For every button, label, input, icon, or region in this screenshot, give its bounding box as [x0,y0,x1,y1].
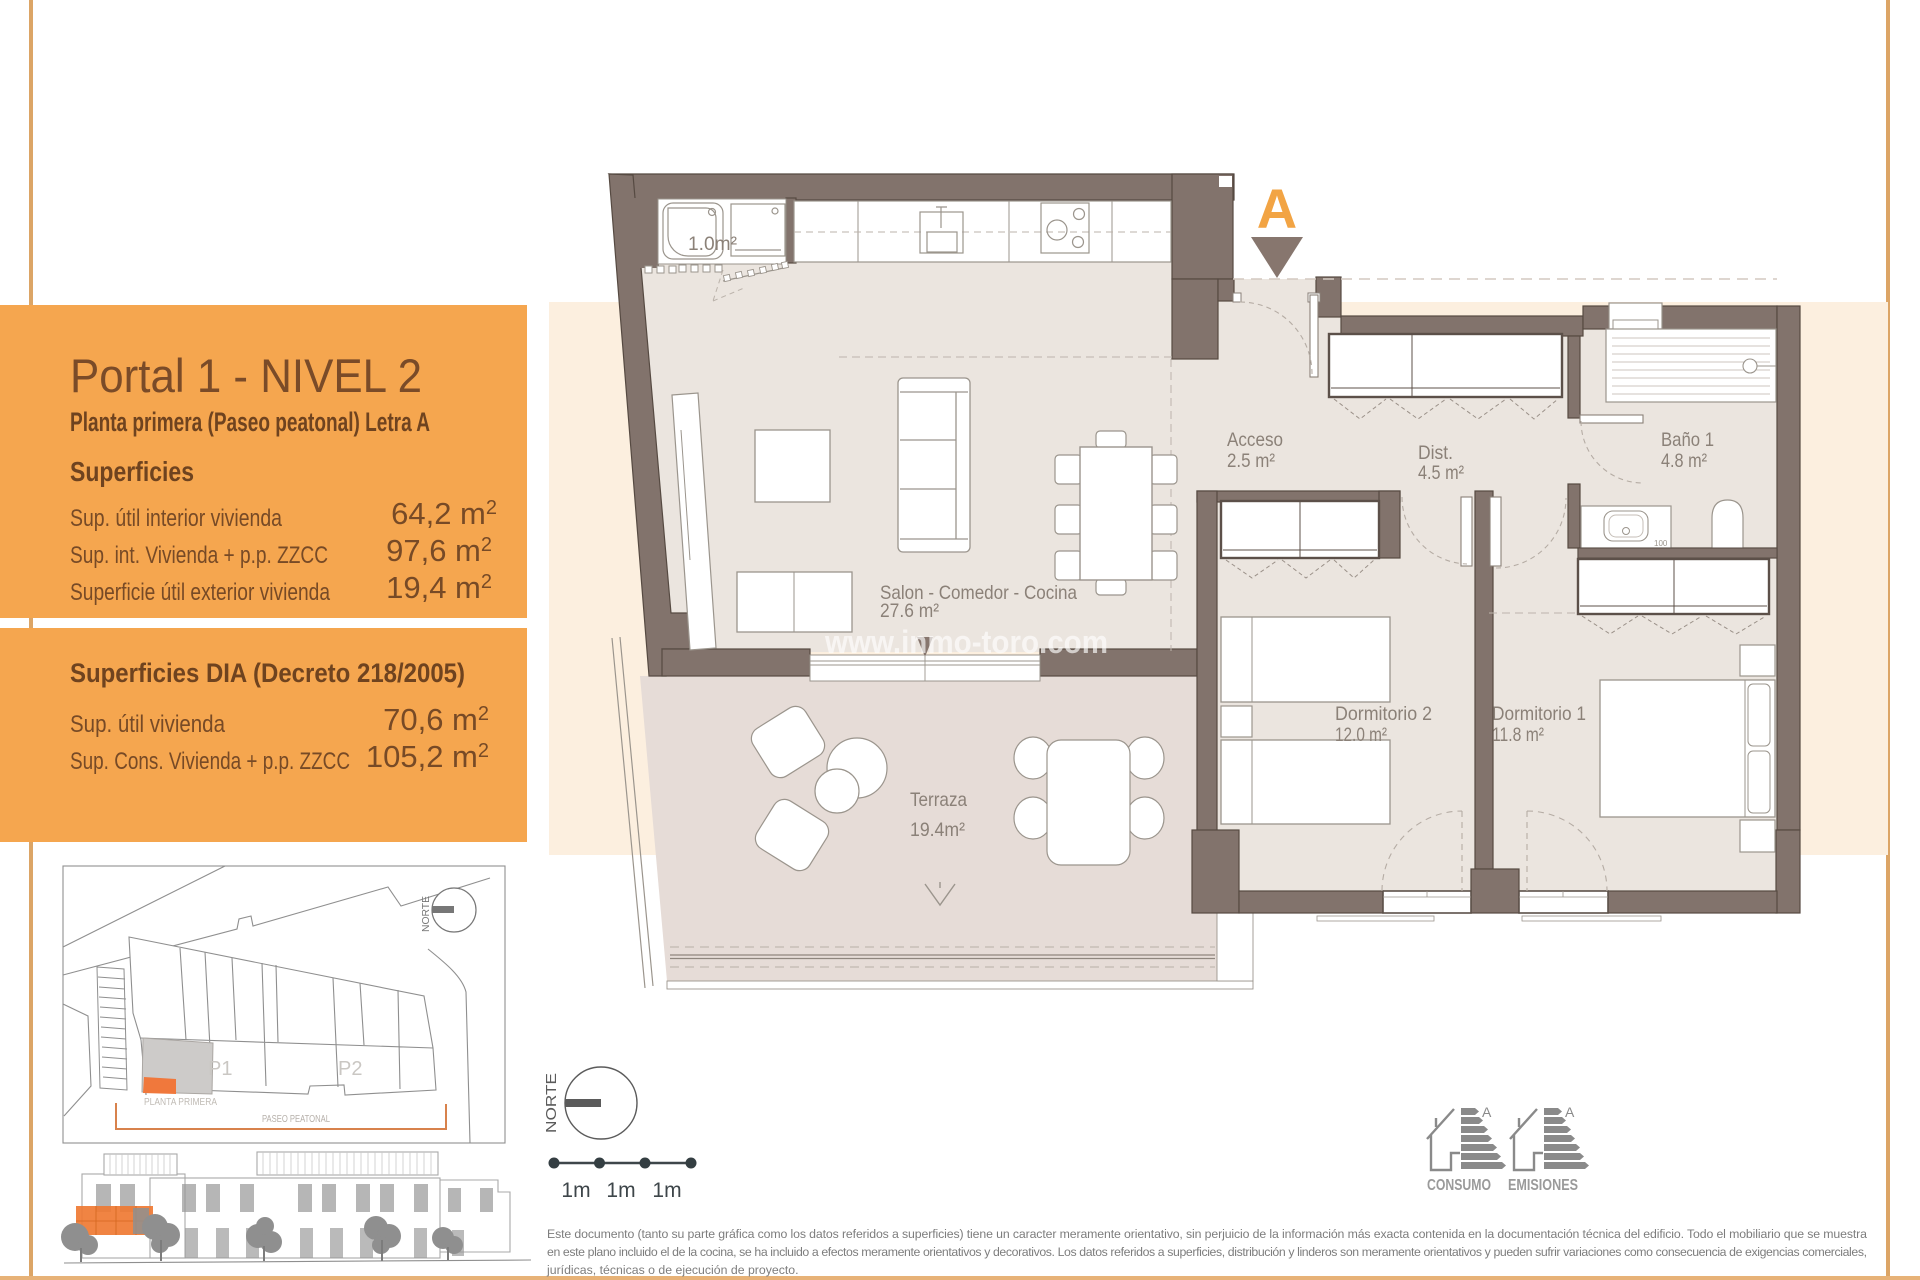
svg-text:64,2 m2: 64,2 m2 [391,496,497,531]
svg-text:19.4m²: 19.4m² [910,819,965,841]
svg-text:105,2 m2: 105,2 m2 [366,739,489,774]
svg-text:Terraza: Terraza [910,789,967,811]
svg-text:jurídicas, técnicas o de e: jurídicas, técnicas o de ejecución de pr… [546,1263,799,1277]
svg-text:Superficies DIA (Decreto 218/2: Superficies DIA (Decreto 218/2005) [70,658,465,688]
svg-text:en este plano incluido el de l: en este plano incluido el de la cocina, … [547,1245,1867,1259]
svg-text:www.inmo-toro.com: www.inmo-toro.com [824,624,1108,660]
svg-text:Sup. Cons. Vivienda + p.p. ZZC: Sup. Cons. Vivienda + p.p. ZZCC [70,748,350,775]
svg-text:70,6 m2: 70,6 m2 [383,702,489,737]
svg-text:CONSUMO: CONSUMO [1427,1177,1491,1194]
svg-text:Sup. int. Vivienda + p.p. ZZCC: Sup. int. Vivienda + p.p. ZZCC [70,542,328,569]
svg-text:EMISIONES: EMISIONES [1508,1177,1578,1194]
svg-text:Superficies: Superficies [70,456,194,487]
svg-text:A: A [1257,177,1297,240]
svg-text:Dormitorio 1: Dormitorio 1 [1492,703,1586,725]
svg-text:Superficie útil exterior vivie: Superficie útil exterior vivienda [70,579,331,606]
svg-text:4.5 m²: 4.5 m² [1418,462,1464,484]
svg-text:PASEO PEATONAL: PASEO PEATONAL [262,1113,330,1125]
svg-text:1m: 1m [561,1179,590,1202]
svg-text:Dormitorio 2: Dormitorio 2 [1335,703,1432,725]
svg-text:1m: 1m [652,1179,681,1202]
svg-text:NORTE: NORTE [421,896,432,932]
svg-text:100: 100 [1654,539,1668,548]
svg-text:P1: P1 [208,1058,232,1080]
svg-text:Dist.: Dist. [1418,442,1453,464]
svg-text:Sup. útil vivienda: Sup. útil vivienda [70,711,226,738]
svg-text:19,4 m2: 19,4 m2 [386,570,492,605]
svg-text:Portal 1 - NIVEL 2: Portal 1 - NIVEL 2 [70,349,422,402]
svg-text:Baño 1: Baño 1 [1661,429,1714,451]
svg-text:97,6 m2: 97,6 m2 [386,533,492,568]
svg-text:A: A [1565,1104,1575,1120]
svg-text:1.0m²: 1.0m² [688,233,737,255]
svg-text:Sup. útil interior vivienda: Sup. útil interior vivienda [70,505,283,532]
svg-text:P2: P2 [338,1058,362,1080]
svg-text:A: A [1482,1104,1492,1120]
svg-text:Planta primera (Paseo peatonal: Planta primera (Paseo peatonal) Letra A [70,407,430,437]
svg-text:2.5 m²: 2.5 m² [1227,450,1275,472]
svg-text:1m: 1m [606,1179,635,1202]
svg-text:27.6 m²: 27.6 m² [880,600,939,622]
svg-text:Acceso: Acceso [1227,429,1283,451]
svg-text:11.8 m²: 11.8 m² [1492,724,1544,746]
svg-text:4.8 m²: 4.8 m² [1661,450,1707,472]
svg-text:12.0 m²: 12.0 m² [1335,724,1387,746]
svg-text:NORTE: NORTE [543,1073,560,1133]
svg-text:Este documento (tanto su parte: Este documento (tanto su parte gráfica c… [547,1227,1867,1241]
svg-text:PLANTA PRIMERA: PLANTA PRIMERA [144,1096,217,1108]
